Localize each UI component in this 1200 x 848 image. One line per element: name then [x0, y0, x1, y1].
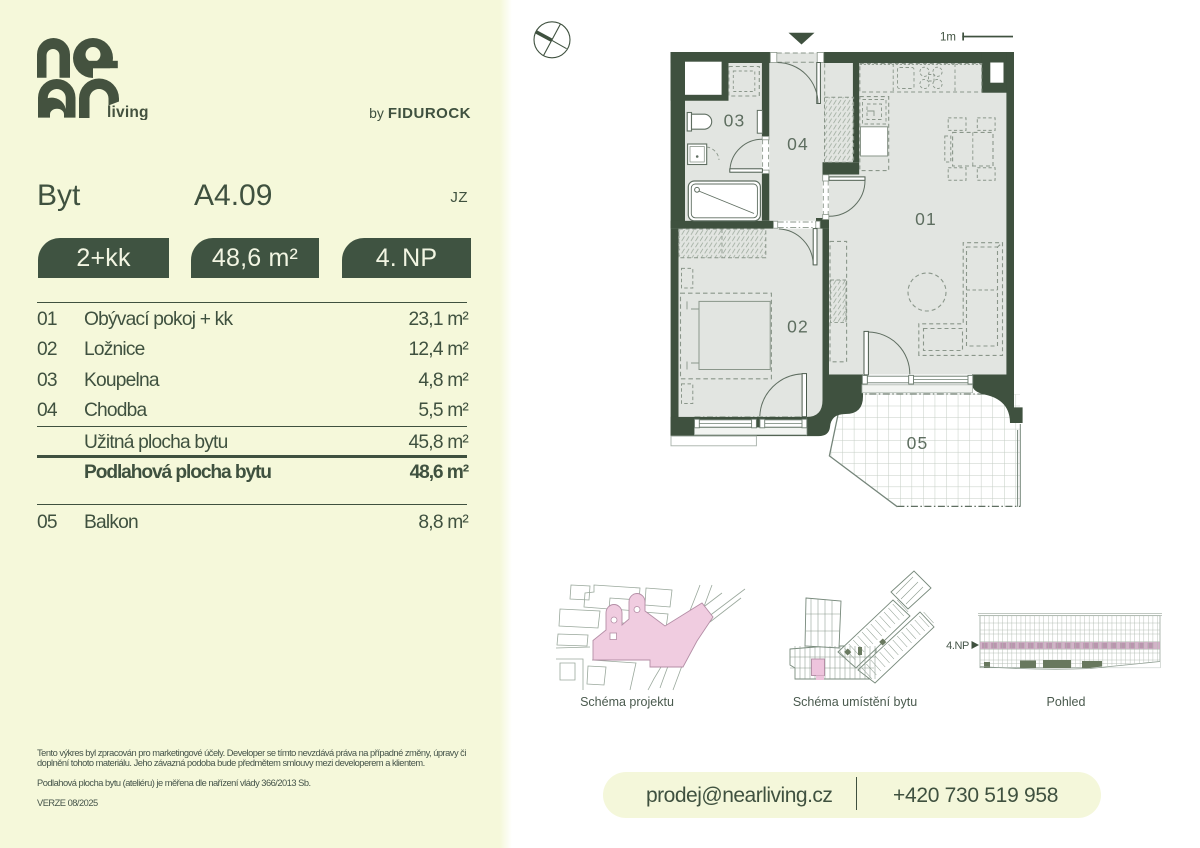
svg-text:1m: 1m	[940, 32, 956, 44]
svg-text:05: 05	[907, 433, 929, 453]
svg-text:Schéma umístění bytu: Schéma umístění bytu	[793, 695, 917, 709]
svg-text:04: 04	[787, 134, 809, 154]
svg-text:03: 03	[724, 111, 746, 131]
svg-text:Pohled: Pohled	[1047, 695, 1086, 709]
svg-text:4.NP: 4.NP	[946, 640, 969, 652]
svg-text:01: 01	[915, 209, 937, 229]
svg-text:02: 02	[787, 317, 809, 337]
svg-text:Schéma projektu: Schéma projektu	[580, 695, 674, 709]
